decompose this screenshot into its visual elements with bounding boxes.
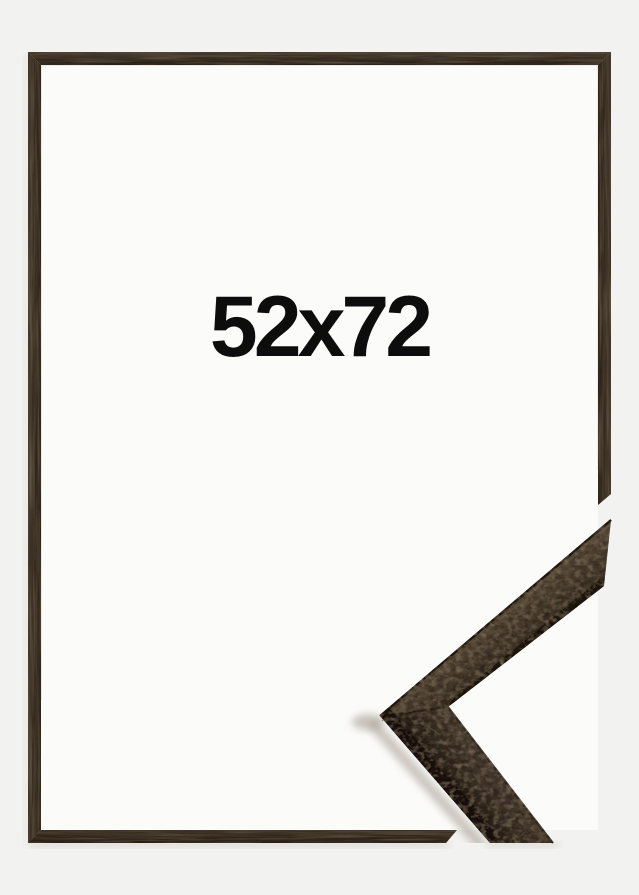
- product-photo: 52x72: [0, 0, 639, 895]
- frame-photo-graphic: [0, 0, 639, 895]
- size-label: 52x72: [0, 284, 639, 370]
- frame-border-top: [28, 52, 611, 65]
- frame-border-bottom: [28, 830, 457, 843]
- frame-inner-mat: [41, 65, 598, 830]
- frame-border-right: [598, 52, 611, 505]
- frame-border-left: [28, 52, 41, 843]
